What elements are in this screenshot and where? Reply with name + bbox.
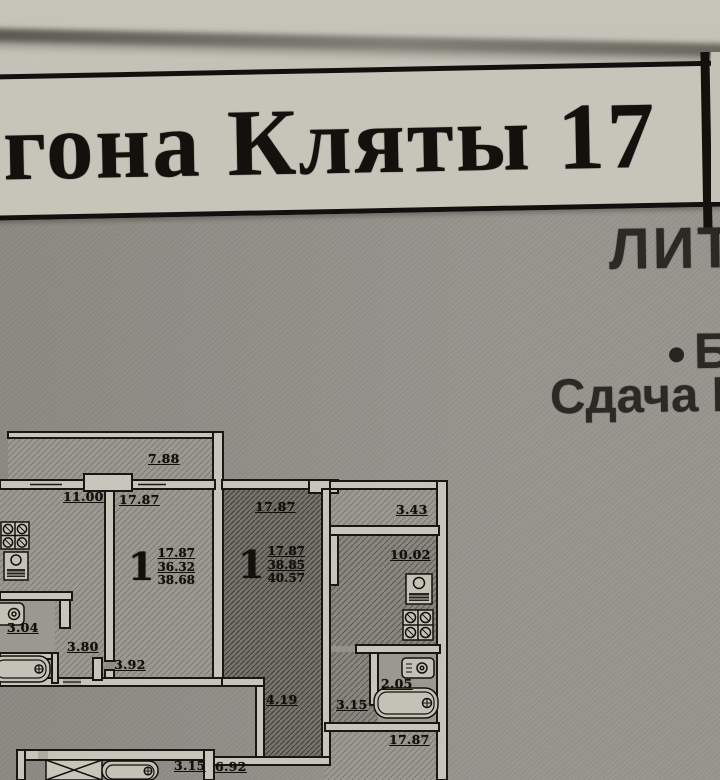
apartment-1-label: 1 17.87 36.32 38.68 [128, 547, 195, 588]
annotation-liter: ЛИТ [609, 214, 720, 283]
apartment-areas: 17.87 36.32 38.68 [157, 547, 195, 588]
dim-hallway: 4.19 [266, 692, 298, 707]
dim-bottom-a: 3.15 [174, 758, 206, 773]
bathtub-icon [0, 656, 50, 682]
dim-right-bath: 2.05 [381, 676, 413, 691]
total-area: 38.68 [157, 574, 195, 588]
dim-left-room: 11.00 [63, 489, 104, 504]
elevator-icon [46, 760, 102, 780]
stove-icon [4, 552, 28, 580]
living-area: 17.87 [157, 547, 195, 561]
dim-apt1-width: 17.87 [119, 492, 160, 507]
burner-grid-icon [403, 610, 433, 640]
burner-grid-icon [1, 522, 29, 549]
sink-icon [402, 658, 434, 678]
usable-area: 36.32 [157, 561, 195, 575]
annotation-completion: Сдача К [550, 367, 720, 426]
dim-kitchen: 10.02 [390, 547, 431, 562]
dim-right-hall: 3.15 [336, 697, 368, 712]
floor-plan [0, 430, 465, 780]
floor-plan-drawing [0, 430, 465, 780]
dim-left-hall-a: 3.80 [67, 639, 99, 654]
usable-area: 38.85 [267, 559, 305, 573]
dim-bottom-room: 17.87 [389, 732, 430, 747]
dim-left-hall-b: 3.92 [114, 657, 146, 672]
total-area: 40.57 [267, 572, 305, 586]
stove-icon [406, 574, 432, 604]
dim-bottom-b: 6.92 [215, 759, 247, 774]
dim-left-sink: 3.04 [7, 620, 39, 635]
address-title: гона Кляты 17 [0, 80, 657, 204]
apartment-areas: 17.87 38.85 40.57 [267, 545, 305, 586]
address-banner: гона Кляты 17 [0, 61, 720, 222]
bathtub-icon [374, 688, 438, 718]
bathtub-icon [102, 761, 158, 780]
apartment-2-label: 1 17.87 38.85 40.57 [238, 545, 305, 586]
apartment-rooms-count: 1 [238, 545, 264, 585]
living-area: 17.87 [267, 545, 305, 559]
dim-right-strip: 3.43 [396, 502, 428, 517]
apartment-rooms-count: 1 [128, 547, 154, 587]
bullet-dot-icon [669, 347, 684, 362]
dim-balcony: 7.88 [148, 451, 180, 466]
page-edge-sliver [711, 52, 720, 202]
scanned-ad-page: гона Кляты 17 ЛИТ Б Сдача К [0, 0, 720, 780]
dim-apt2-width: 17.87 [255, 499, 296, 514]
